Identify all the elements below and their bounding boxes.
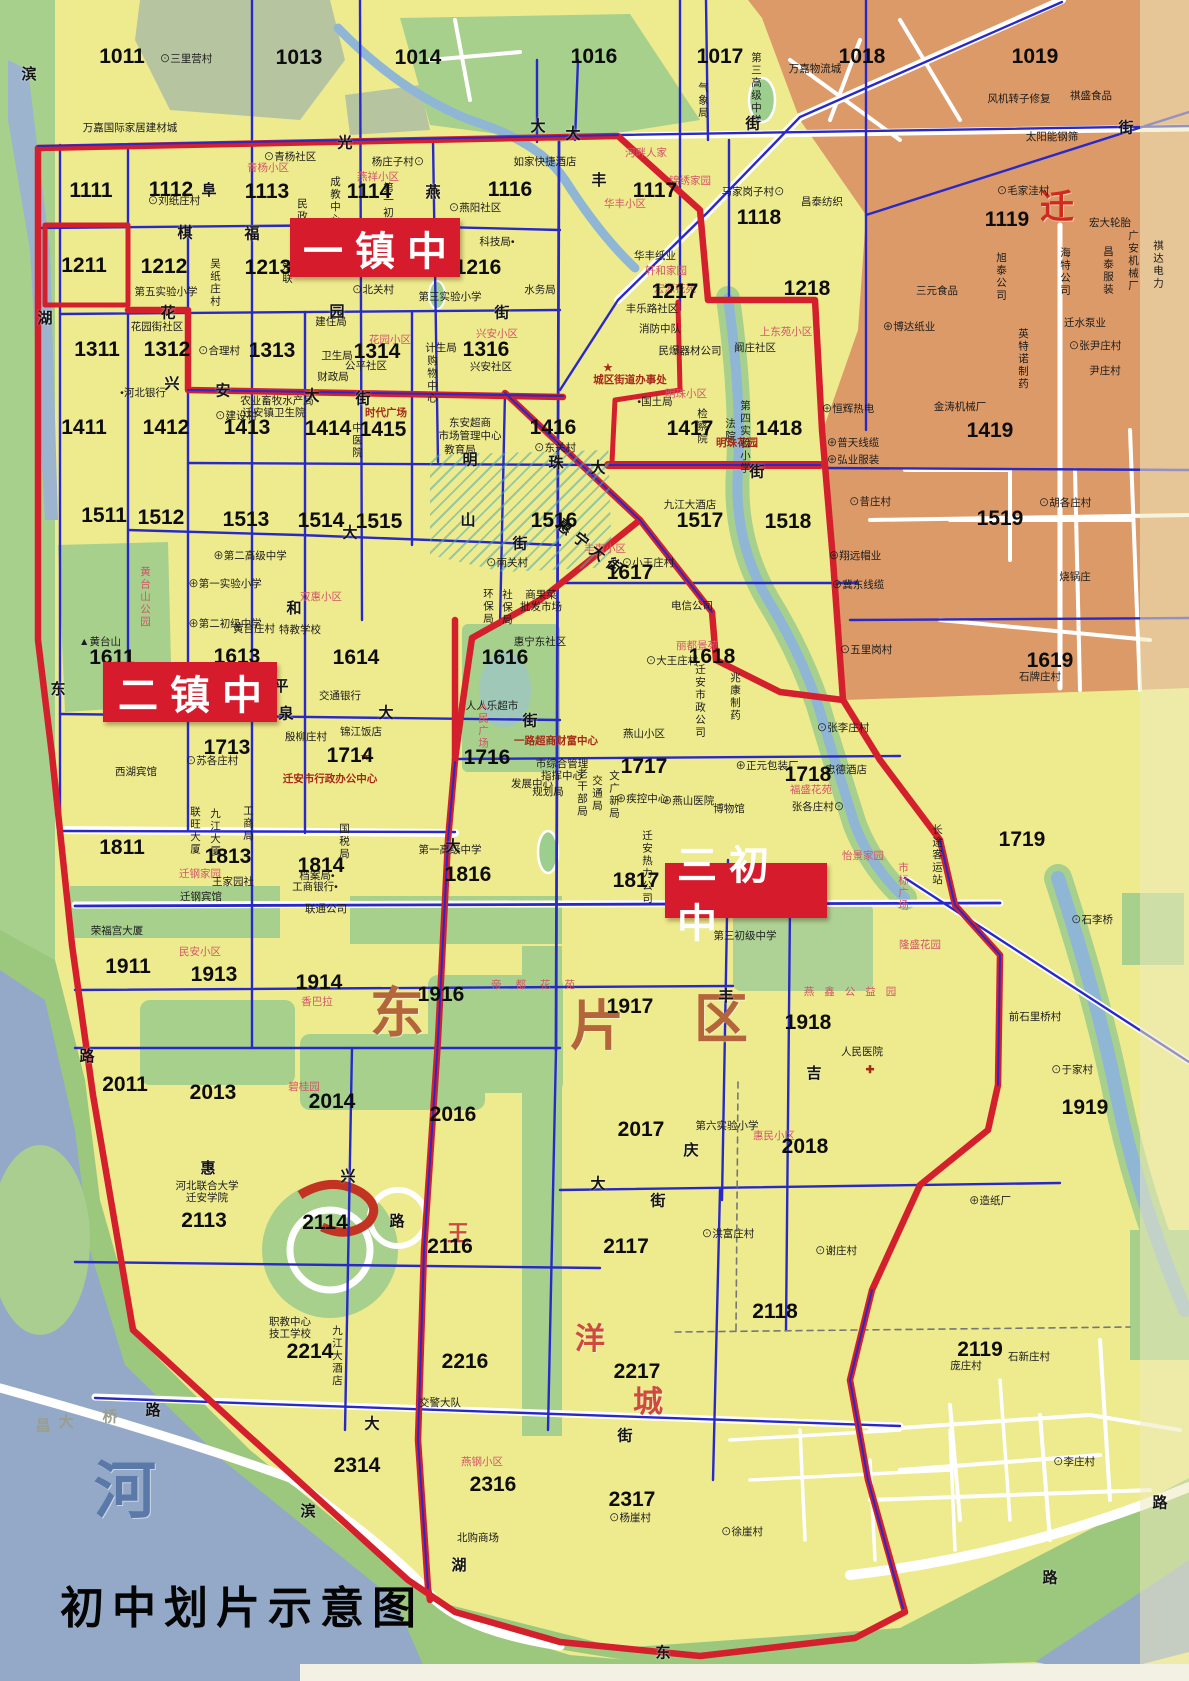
street-name: 大 (304, 385, 319, 406)
landmark-label: ✚ (866, 1064, 875, 1076)
region-label: 片 (570, 982, 624, 1061)
district-number: 1116 (488, 178, 532, 202)
landmark-label: 祺达电力 (1152, 240, 1164, 290)
street-name: 大 (527, 118, 548, 135)
street-name: 兴 (337, 1168, 358, 1185)
landmark-label: ⊕普天线缆 (827, 437, 880, 449)
landmark-label: ⊙石李桥 (1071, 914, 1113, 926)
region-label: 区 (694, 975, 748, 1054)
map-canvas: 1011101310141016101710181019111111121113… (0, 0, 1189, 1681)
landmark-label: 燕钢小区 (461, 1456, 503, 1468)
landmark-label: 工商银行• (292, 881, 338, 893)
landmark-label: 民安小区 (179, 946, 221, 958)
district-number: 1216 (455, 256, 502, 280)
landmark-label: 科技局• (479, 236, 514, 248)
landmark-label: 兆康制药 (729, 672, 741, 722)
landmark-label: ⊙三里营村 (160, 53, 213, 65)
district-number: 1913 (191, 963, 238, 987)
landmark-label: ⊕翔远帽业 (829, 550, 882, 562)
district-number: 1718 (785, 763, 832, 787)
landmark-label: 迁安热力公司 (641, 830, 653, 905)
landmark-label: ⊕恒辉热电 (822, 403, 875, 415)
page-edge-right (1140, 0, 1189, 1681)
district-number: 1517 (677, 509, 724, 533)
street-name: 庆 (680, 1142, 701, 1159)
landmark-label: 怡景家园 (842, 850, 884, 862)
street-name: 湖 (448, 1557, 469, 1574)
district-number: 1119 (985, 208, 1029, 232)
district-number: 1513 (223, 508, 270, 532)
landmark-label: ⊙徐崖村 (721, 1526, 763, 1538)
district-number: 1017 (697, 45, 744, 69)
street-name: 滨 (297, 1503, 318, 1520)
district-number: 2314 (334, 1454, 381, 1478)
landmark-label: 交通银行 (319, 690, 361, 702)
street-name: 安 (215, 380, 230, 401)
street-name: 街 (745, 113, 760, 134)
landmark-label: 人民广场 (477, 700, 489, 750)
landmark-label: 丰乐路社区 (626, 303, 679, 315)
district-number: 1217 (652, 280, 699, 304)
landmark-label: 石新庄村 (1008, 1351, 1050, 1363)
landmark-label: 消防中队 (639, 323, 681, 335)
landmark-label: 工商局 (242, 805, 254, 843)
street-name: 明 (462, 449, 477, 470)
district-number: 1911 (105, 955, 151, 979)
school-banner-district-3: 三初中 (665, 863, 827, 918)
district-number: 1516 (531, 509, 578, 533)
street-name: 路 (76, 1048, 97, 1065)
district-number: 2316 (470, 1473, 517, 1497)
street-name: 花 (160, 302, 175, 323)
street-name: 滨 (18, 66, 39, 83)
landmark-label: 海特公司 (1059, 247, 1071, 297)
landmark-label: 隆盛花园 (899, 939, 941, 951)
district-number: 2117 (603, 1235, 649, 1259)
landmark-label: 太阳能钢筛 (1026, 131, 1079, 143)
landmark-label: 三元食品 (916, 285, 958, 297)
landmark-label: 英特诺制药 (1017, 328, 1029, 391)
landmark-label: 荣福宫大厦 (91, 925, 144, 937)
landmark-label: ⊕疾控中心 (616, 793, 669, 805)
landmark-label: 气象局 (697, 82, 709, 120)
landmark-label: 旭泰公司 (995, 252, 1007, 302)
landmark-label: 交通局 (591, 775, 603, 813)
landmark-label: 民爆器材公司 (659, 345, 722, 357)
landmark-label: ⊕第一实验小学 (188, 578, 262, 590)
street-name: 大 (442, 838, 463, 855)
landmark-label: ⊙南关村 (486, 557, 528, 569)
district-number: 1617 (607, 561, 654, 585)
district-number: 1619 (1027, 649, 1074, 673)
street-name: 泉 (278, 703, 293, 724)
district-number: 2217 (614, 1360, 661, 1384)
landmark-label: 水务局 (524, 284, 556, 296)
landmark-label: 黄台山公园 (139, 566, 151, 629)
landmark-label: ⊕燕山医院 (662, 795, 715, 807)
landmark-label: 农业畜牧水产局 (240, 395, 314, 407)
district-number: 1917 (607, 995, 654, 1019)
street-name: 湖 (34, 310, 55, 327)
landmark-label: 人人乐超市 (466, 700, 519, 712)
district-number: 1816 (445, 863, 492, 887)
district-number: 1018 (839, 45, 886, 69)
landmark-label: 联通公司 (305, 903, 347, 915)
street-name: 街 (522, 710, 537, 731)
street-name: 路 (1042, 1567, 1057, 1588)
district-number: 1118 (737, 206, 781, 230)
street-name: 大 (378, 702, 393, 723)
landmark-label: 北购商场 (457, 1532, 499, 1544)
region-label: 河 (94, 1440, 156, 1530)
school-banner-label: 一镇中 (291, 219, 459, 277)
region-label: 东 (370, 969, 424, 1048)
street-name: 兴 (164, 373, 179, 394)
street-name: 福 (244, 223, 259, 244)
street-name: 街 (617, 1425, 632, 1446)
district-number: 1113 (245, 180, 289, 204)
district-number: 1519 (977, 507, 1024, 531)
street-name: 丰 (588, 172, 609, 189)
street-name: 燕 (422, 184, 443, 201)
landmark-label: 西湖宾馆 (115, 766, 157, 778)
landmark-label: ⊙五里岗村 (840, 644, 893, 656)
street-name: 吉 (803, 1065, 824, 1082)
district-number: 1313 (249, 339, 296, 363)
street-name: 大 (590, 1173, 605, 1194)
page-edge-bottom (300, 1664, 1189, 1681)
district-number: 1016 (571, 45, 618, 69)
landmark-label: 第六实验小学 (696, 1120, 759, 1132)
landmark-label: ⊙张尹庄村 (1069, 340, 1122, 352)
district-number: 1011 (99, 45, 145, 69)
district-number: 1412 (143, 416, 190, 440)
landmark-label: 黄台庄村 (233, 623, 275, 635)
landmark-label: 迁水泵业 (1064, 317, 1106, 329)
landmark-label: 长途客运站 (931, 824, 943, 887)
district-number: 1411 (61, 416, 107, 440)
street-name: 丰 (715, 988, 736, 1005)
landmark-label: 昌泰纺织 (801, 196, 843, 208)
landmark-label: 电信公司 (671, 600, 713, 612)
landmark-label: 广安机械厂 (1127, 230, 1139, 293)
landmark-label: 计生局 (425, 342, 457, 354)
district-number: 1019 (1012, 45, 1059, 69)
street-name: 大 (565, 123, 580, 144)
district-number: 1311 (74, 338, 120, 362)
landmark-label: 万嘉物流城 (789, 63, 842, 75)
school-banner-label: 三初中 (665, 833, 827, 949)
landmark-label: 兴安社区 (470, 361, 512, 373)
district-number: 1714 (327, 744, 374, 768)
landmark-label: 财政局 (317, 371, 349, 383)
landmark-label: ⊕弘业服装 (827, 454, 880, 466)
landmark-label: ⊙合理村 (198, 345, 240, 357)
district-number: 1914 (296, 971, 343, 995)
district-number: 1511 (81, 504, 127, 528)
landmark-label: 社保局 (501, 589, 513, 627)
street-name: 大 (364, 1413, 379, 1434)
landmark-label: 河畔人家 (625, 147, 667, 159)
district-number: 1518 (765, 510, 812, 534)
region-label: 洋 (575, 1314, 605, 1358)
district-number: 1416 (530, 416, 577, 440)
street-name: 园 (329, 301, 344, 322)
landmark-label: ★ (603, 362, 612, 374)
district-number: 1717 (621, 755, 668, 779)
district-number: 1919 (1062, 1096, 1109, 1120)
landmark-label: ⊙杨崖村 (609, 1512, 651, 1524)
district-number: 1415 (360, 418, 407, 442)
district-number: 2014 (309, 1090, 356, 1114)
landmark-label: 张各庄村⊙ (792, 801, 845, 813)
district-number: 1112 (149, 178, 193, 202)
landmark-label: 博物馆 (713, 803, 745, 815)
landmark-label: 昌泰服装 (1102, 246, 1114, 296)
street-name: 路 (1152, 1492, 1167, 1513)
landmark-label: 联旺大厦 (189, 806, 201, 856)
district-number: 1616 (482, 646, 529, 670)
landmark-label: 市场管理中心 (439, 430, 502, 442)
landmark-label: 帝都花苑 (491, 979, 589, 991)
district-number: 1316 (463, 338, 510, 362)
district-number: 1618 (689, 645, 736, 669)
landmark-label: ⊙李庄村 (1053, 1456, 1095, 1468)
landmark-label: ⊙胡各庄村 (1039, 497, 1092, 509)
district-number: 1014 (395, 46, 442, 70)
district-number: 1614 (333, 646, 380, 670)
landmark-label: 河北联合大学 迁安学院 (176, 1180, 239, 1204)
landmark-label: 特教学校 (279, 624, 321, 636)
street-name: 街 (494, 302, 509, 323)
district-number: 1713 (204, 736, 251, 760)
landmark-label: 东安超商 (449, 417, 491, 429)
landmark-label: ⊕造纸厂 (969, 1195, 1011, 1207)
street-name: 大 (590, 457, 605, 478)
landmark-label: ⊙毛家洼村 (997, 185, 1050, 197)
landmark-label: 上东苑小区 (760, 326, 813, 338)
district-number: 2317 (609, 1488, 656, 1512)
district-number: 1111 (69, 179, 112, 203)
landmark-label: 迁安市政公司 (694, 664, 706, 739)
landmark-label: 迁钢宾馆 (180, 891, 222, 903)
landmark-label: 燕山小区 (623, 728, 665, 740)
landmark-label: 阚庄社区 (734, 342, 776, 354)
landmark-label: ⊕冀东线缆 (832, 579, 885, 591)
landmark-label: 风机转子修复 (988, 93, 1051, 105)
landmark-label: 人民医院 (841, 1046, 883, 1058)
landmark-label: 燕鑫公益园 (804, 986, 907, 998)
district-number: 1213 (245, 256, 292, 280)
landmark-label: 锦江饭店 (340, 726, 382, 738)
landmark-label: 市标广场 (897, 862, 909, 912)
district-number: 1417 (667, 417, 714, 441)
landmark-label: 明珠小区 (665, 388, 707, 400)
landmark-label: ⊙谢庄村 (815, 1245, 857, 1257)
landmark-label: 规划局 (532, 786, 564, 798)
district-number: 1918 (785, 1011, 832, 1035)
district-number: 1013 (276, 46, 323, 70)
district-number: 1211 (61, 254, 107, 278)
landmark-label: 轩和家园 (645, 265, 687, 277)
landmark-label: 一路超商财富中心 (514, 735, 598, 747)
landmark-label: 烧锅庄 (1059, 571, 1091, 583)
district-number: 1314 (354, 340, 401, 364)
district-number: 2119 (957, 1338, 1003, 1362)
school-banner-district-2: 二镇中 (103, 662, 277, 722)
street-name: 东 (47, 681, 68, 698)
street-name: 惠 (197, 1160, 218, 1177)
landmark-label: 老干部局 (576, 768, 588, 818)
district-number: 2216 (442, 1350, 489, 1374)
landmark-label: 前石里桥村 (1009, 1011, 1062, 1023)
landmark-label: 金涛机械厂 (934, 401, 987, 413)
landmark-label: 香巴拉 (301, 996, 333, 1008)
district-number: 2116 (427, 1235, 473, 1259)
district-number: 1413 (224, 416, 271, 440)
map-title: 初中划片示意图 (60, 1572, 424, 1636)
district-number: 2016 (430, 1103, 477, 1127)
landmark-label: 第三实验小学 (419, 291, 482, 303)
landmark-label: ⊙昔庄村 (849, 496, 891, 508)
street-name: 桥 (102, 1406, 117, 1427)
landmark-label: 迁安市行政办公中心 (283, 773, 378, 785)
district-number: 1117 (633, 179, 677, 203)
district-number: 2013 (190, 1081, 237, 1105)
landmark-label: 尹庄村 (1089, 365, 1121, 377)
district-number: 1817 (613, 869, 660, 893)
landmark-label: 吴纸庄村 (209, 258, 221, 308)
landmark-label: 杨庄子村⊙ (372, 156, 425, 168)
street-name: 街 (749, 461, 764, 482)
landmark-label: ⊙张李庄村 (817, 722, 870, 734)
street-name: 棋 (177, 222, 192, 243)
street-name: 珠 (548, 452, 563, 473)
district-number: 1814 (298, 854, 345, 878)
street-name: 路 (142, 1402, 163, 1419)
district-number: 1418 (756, 417, 803, 441)
district-number: 1514 (298, 509, 345, 533)
district-number: 2017 (618, 1118, 665, 1142)
district-number: 1312 (144, 338, 191, 362)
landmark-label: 祺盛食品 (1070, 90, 1112, 102)
landmark-label: 殷柳庄村 (285, 731, 327, 743)
landmark-label: 交警大队 (419, 1397, 461, 1409)
landmark-label: 第五实验小学 (135, 286, 198, 298)
street-name: 光 (337, 132, 352, 153)
landmark-label: •河北银行 (120, 387, 166, 399)
street-name: 大 (58, 1411, 73, 1432)
street-name: 和 (283, 600, 304, 617)
district-number: 2113 (181, 1209, 227, 1233)
school-banner-label: 二镇中 (106, 663, 274, 721)
landmark-label: ⊙燕阳社区 (449, 202, 502, 214)
landmark-label: 马家岗子村⊙ (722, 186, 785, 198)
landmark-label: ⊕第二高级中学 (213, 550, 287, 562)
landmark-label: ⊙北关村 (352, 284, 394, 296)
landmark-label: ⊙于家村 (1051, 1064, 1093, 1076)
district-number: 1916 (418, 983, 465, 1007)
landmark-label: 华丰纸业 (634, 250, 676, 262)
district-number: 1414 (305, 417, 352, 441)
landmark-label: 青杨小区 (247, 162, 289, 174)
district-number: 1716 (464, 746, 511, 770)
district-number: 1212 (141, 255, 188, 279)
street-name: 街 (355, 388, 370, 409)
district-number: 1419 (967, 419, 1014, 443)
street-name: 昌 (35, 1415, 50, 1436)
district-number: 1515 (356, 510, 403, 534)
landmark-label: 王家园社 (212, 876, 254, 888)
district-number: 1813 (205, 845, 252, 869)
school-banner-district-1: 一镇中 (290, 218, 460, 277)
district-number: 2114 (302, 1211, 348, 1235)
street-name: 街 (650, 1190, 665, 1211)
district-number: 1512 (138, 506, 185, 530)
district-number: 1218 (784, 277, 831, 301)
street-name: 阜 (198, 182, 219, 199)
landmark-label: 万嘉国际家居建材城 (83, 122, 178, 134)
landmark-label: 职教中心 技工学校 (269, 1316, 311, 1340)
landmark-label: 商果菜 批发市场 (520, 589, 562, 613)
district-number: 2118 (752, 1300, 798, 1324)
district-number: 1719 (999, 828, 1046, 852)
landmark-label: 购物中心 (426, 355, 438, 405)
district-number: 2018 (782, 1135, 829, 1159)
street-name: 街 (1118, 117, 1133, 138)
street-name: 路 (386, 1213, 407, 1230)
landmark-label: 环保局 (482, 588, 494, 626)
street-name: 东 (655, 1642, 670, 1663)
landmark-label: 明珠花园 (716, 437, 758, 449)
landmark-label: 宏大轮胎 (1089, 217, 1131, 229)
landmark-label: 如家快捷酒店 (514, 156, 577, 168)
district-number: 1114 (347, 180, 391, 204)
landmark-label: 花园街社区 (131, 321, 184, 333)
street-name: 山 (457, 512, 478, 529)
landmark-label: ⊕博达纸业 (883, 321, 936, 333)
district-number: 2011 (102, 1073, 148, 1097)
landmark-label: ⊙洪富庄村 (702, 1228, 755, 1240)
street-name: 街 (512, 533, 527, 554)
landmark-label: 双惠小区 (300, 591, 342, 603)
district-number: 2214 (287, 1340, 334, 1364)
district-number: 1811 (99, 836, 145, 860)
landmark-label: 城区街道办事处 (593, 374, 667, 386)
